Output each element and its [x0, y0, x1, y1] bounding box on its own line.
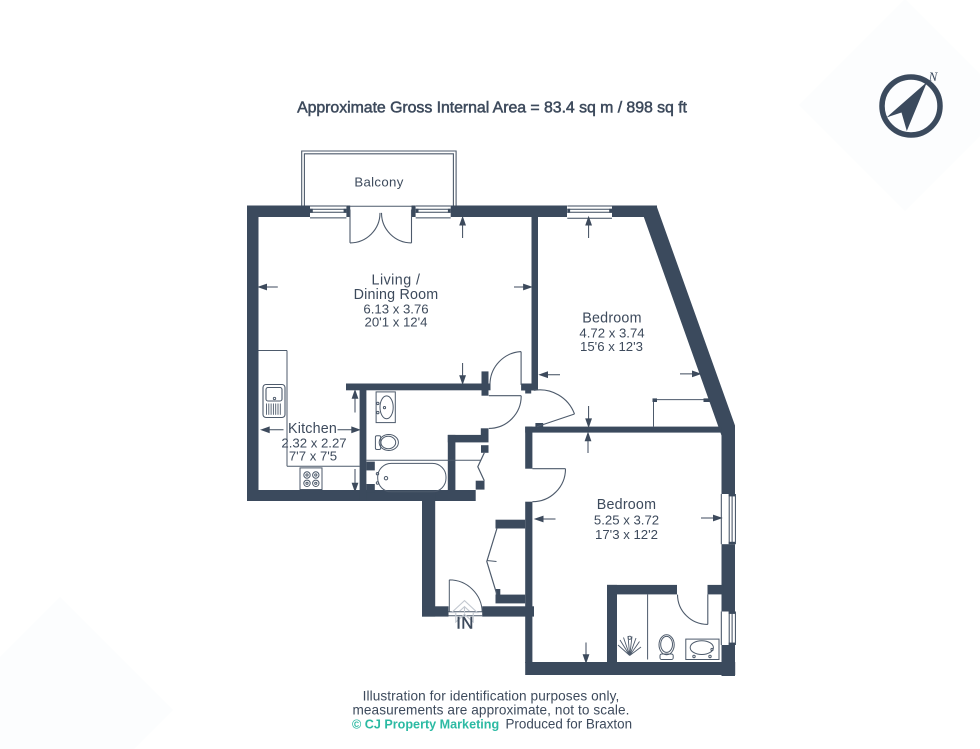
- svg-text:IN: IN: [456, 613, 474, 632]
- svg-text:Approximate Gross Internal Are: Approximate Gross Internal Area = 83.4 s…: [297, 100, 687, 117]
- svg-text:Balcony: Balcony: [354, 175, 403, 190]
- svg-text:5.25 x 3.72: 5.25 x 3.72: [594, 513, 659, 528]
- svg-text:17'3 x 12'2: 17'3 x 12'2: [595, 527, 658, 542]
- svg-text:20'1 x 12'4: 20'1 x 12'4: [365, 315, 428, 330]
- svg-text:© CJ Property Marketing: © CJ Property Marketing: [352, 718, 499, 732]
- svg-text:15'6 x 12'3: 15'6 x 12'3: [580, 339, 643, 354]
- svg-text:Illustration for identificatio: Illustration for identification purposes…: [363, 689, 620, 704]
- svg-text:7'7 x 7'5: 7'7 x 7'5: [289, 449, 337, 464]
- svg-text:Bedroom: Bedroom: [582, 311, 641, 327]
- svg-text:Produced for Braxton: Produced for Braxton: [506, 717, 633, 732]
- svg-text:Bedroom: Bedroom: [597, 497, 656, 513]
- svg-text:measurements are approximate,: measurements are approximate, not to sca…: [352, 703, 629, 718]
- svg-text:N: N: [928, 69, 939, 84]
